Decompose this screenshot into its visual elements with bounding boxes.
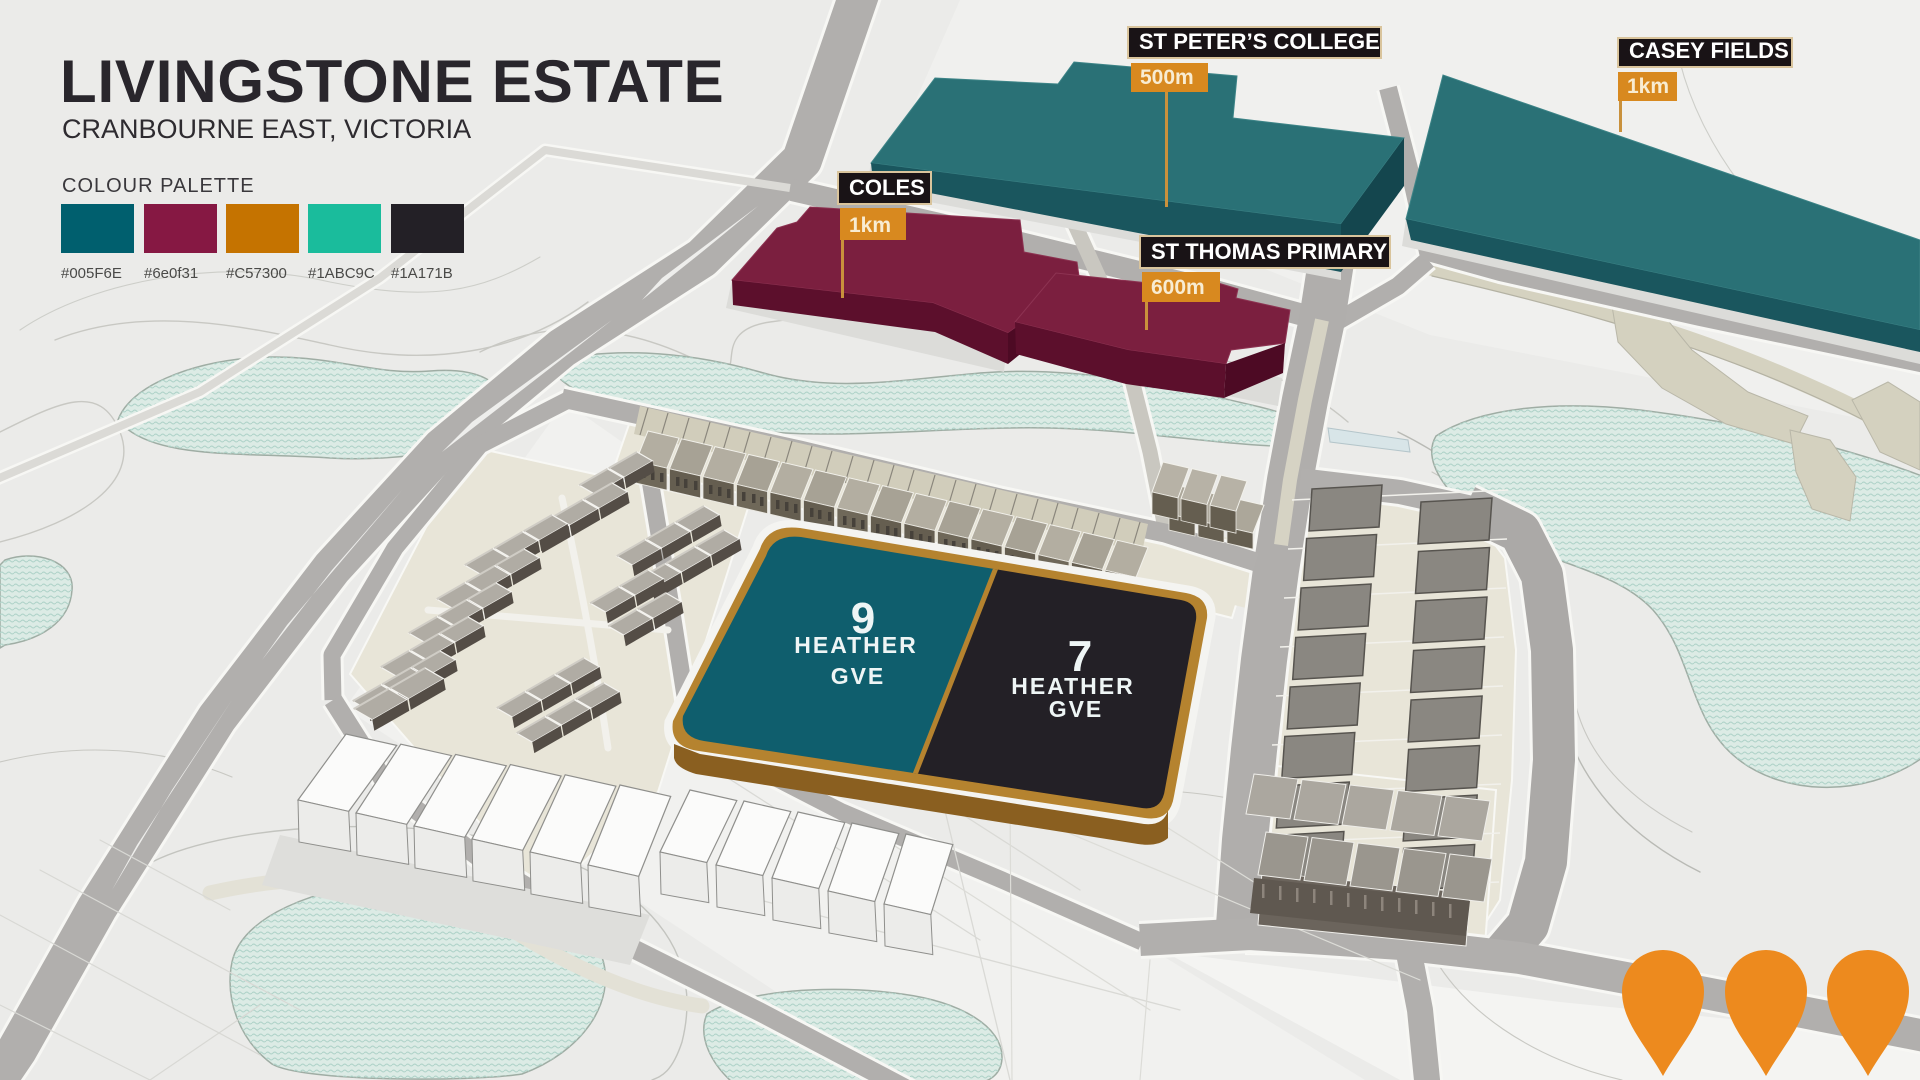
svg-text:COLES: COLES (849, 175, 925, 200)
svg-text:ST THOMAS PRIMARY: ST THOMAS PRIMARY (1151, 239, 1388, 264)
svg-text:#005F6E: #005F6E (61, 265, 122, 282)
svg-text:#6e0f31: #6e0f31 (144, 265, 198, 282)
svg-text:GVE: GVE (831, 663, 886, 689)
svg-text:ST PETER’S COLLEGE: ST PETER’S COLLEGE (1139, 29, 1380, 54)
svg-text:1km: 1km (849, 214, 891, 237)
svg-text:#C57300: #C57300 (226, 265, 287, 282)
svg-text:#1A171B: #1A171B (391, 265, 453, 282)
svg-text:CASEY FIELDS: CASEY FIELDS (1629, 38, 1789, 63)
svg-text:500m: 500m (1140, 66, 1194, 89)
svg-text:CRANBOURNE EAST, VICTORIA: CRANBOURNE EAST, VICTORIA (62, 114, 471, 144)
svg-text:GVE: GVE (1049, 696, 1104, 722)
svg-text:COLOUR PALETTE: COLOUR PALETTE (62, 175, 255, 197)
svg-text:1km: 1km (1627, 75, 1669, 98)
svg-text:HEATHER: HEATHER (794, 632, 917, 658)
svg-text:#1ABC9C: #1ABC9C (308, 265, 375, 282)
svg-text:600m: 600m (1151, 276, 1205, 299)
svg-text:LIVINGSTONE ESTATE: LIVINGSTONE ESTATE (60, 48, 724, 115)
